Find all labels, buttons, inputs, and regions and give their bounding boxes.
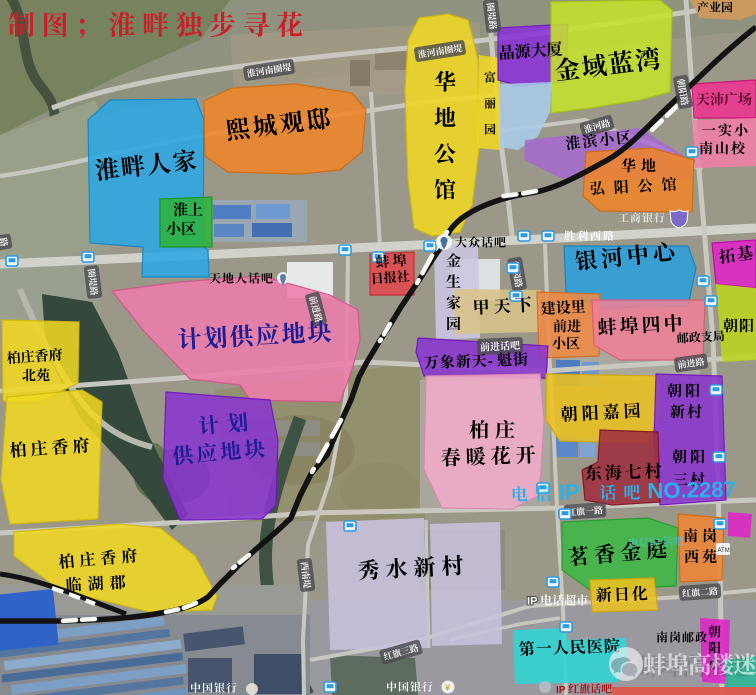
svg-text:NO.2287: NO.2287 <box>647 477 736 504</box>
svg-text:IP: IP <box>559 479 580 504</box>
svg-text:IP: IP <box>650 538 660 549</box>
svg-text:IP: IP <box>527 596 537 608</box>
svg-text:¥: ¥ <box>444 683 451 693</box>
svg-text:IP: IP <box>556 685 566 695</box>
svg-text:ATM: ATM <box>718 548 730 554</box>
